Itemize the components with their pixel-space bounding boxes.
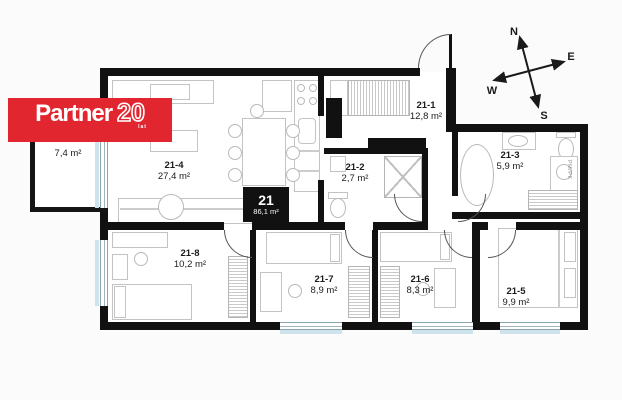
dresser [112, 254, 128, 280]
bath-sink-basin [508, 135, 528, 147]
unit-number: 21 [243, 193, 289, 208]
toilet [330, 198, 346, 218]
stove-burner [297, 84, 305, 92]
window [500, 322, 560, 330]
bed-seam [558, 228, 560, 308]
room-number: 21-2 [326, 162, 384, 173]
pillow [564, 268, 576, 298]
pillow [114, 286, 126, 318]
round-table [158, 194, 184, 220]
chair [286, 124, 300, 138]
stove-burner [297, 97, 305, 105]
room-area: 2,7 m² [326, 173, 384, 184]
window [280, 322, 342, 330]
logo-brand-text: Partner [35, 102, 112, 126]
compass-ew-axis [495, 62, 563, 80]
wall-segment [580, 124, 588, 330]
room-label-21-6: 21-6 8,3 m² [388, 274, 452, 297]
floor-plan: PM/PK [0, 0, 622, 400]
room-label-balcony: 7,4 m² [38, 148, 98, 159]
wall-segment [318, 76, 324, 116]
room-label-21-3: 21-3 5,9 m² [478, 150, 542, 173]
room-label-21-2: 21-2 2,7 m² [326, 162, 384, 185]
room-area: 27,4 m² [142, 171, 206, 182]
wall-segment [452, 132, 458, 196]
wall-segment [373, 222, 428, 230]
window-glass [500, 330, 560, 334]
chair [250, 104, 264, 118]
room-number: 21-5 [484, 286, 548, 297]
room-number: 21-1 [394, 100, 458, 111]
pillow [330, 234, 340, 262]
window [100, 240, 108, 306]
window-glass [412, 330, 473, 334]
wall-segment [472, 222, 488, 230]
room-area: 9,9 m² [484, 297, 548, 308]
logo-20-outline: 20lat [117, 101, 145, 126]
room-label-21-4: 21-4 27,4 m² [142, 160, 206, 183]
compass-e-label: E [567, 51, 574, 63]
chair [228, 124, 242, 138]
wall-segment [516, 222, 580, 230]
bath-wardrobe [528, 190, 578, 210]
chair [228, 146, 242, 160]
wall-segment [108, 222, 224, 230]
room-label-21-8: 21-8 10,2 m² [158, 248, 222, 271]
compass-n-label: N [510, 26, 518, 38]
room-area: 8,9 m² [292, 285, 356, 296]
shower [384, 156, 422, 198]
shaft [368, 138, 426, 150]
room-label-21-5: 21-5 9,9 m² [484, 286, 548, 309]
room-area: 5,9 m² [478, 161, 542, 172]
desk [260, 272, 282, 312]
room-area: 10,2 m² [158, 259, 222, 270]
room-area: 8,3 m² [388, 285, 452, 296]
window-glass [280, 330, 342, 334]
fridge [262, 80, 292, 112]
stove-burner [309, 97, 317, 105]
compass-rose: N E W S [486, 24, 578, 120]
room-area: 7,4 m² [38, 148, 98, 159]
room-number: 21-3 [478, 150, 542, 161]
unit-area: 86,1 m² [243, 207, 289, 216]
room-label-21-1: 21-1 12,8 m² [394, 100, 458, 123]
chair [228, 168, 242, 182]
chair [286, 168, 300, 182]
window [412, 322, 473, 330]
shaft [326, 98, 342, 138]
partner-logo: Partner 20lat [8, 98, 172, 142]
room-number: 21-7 [292, 274, 356, 285]
chair [134, 252, 148, 266]
wall-segment [472, 230, 480, 322]
entrance-door-arc [418, 34, 451, 68]
room-label-21-7: 21-7 8,9 m² [292, 274, 356, 297]
chair [286, 146, 300, 160]
room-number: 21-6 [388, 274, 452, 285]
wall-segment [100, 68, 420, 76]
room-number: 21-8 [158, 248, 222, 259]
dining-table [242, 118, 286, 186]
pillow [564, 232, 576, 262]
washer-label: PM/PK [566, 160, 572, 180]
stove-burner [309, 84, 317, 92]
compass-s-label: S [540, 110, 547, 120]
wall-segment [446, 124, 588, 132]
kitchen-basin [298, 118, 316, 144]
compass-w-label: W [487, 85, 498, 97]
window-glass [95, 240, 99, 306]
unit-badge: 21 86,1 m² [243, 187, 289, 222]
wall-segment [422, 154, 428, 228]
wall-segment [252, 222, 345, 230]
desk [112, 232, 168, 248]
room-area: 12,8 m² [394, 111, 458, 122]
wardrobe [228, 256, 248, 318]
logo-suffix: lat [138, 125, 147, 130]
room-number: 21-4 [142, 160, 206, 171]
